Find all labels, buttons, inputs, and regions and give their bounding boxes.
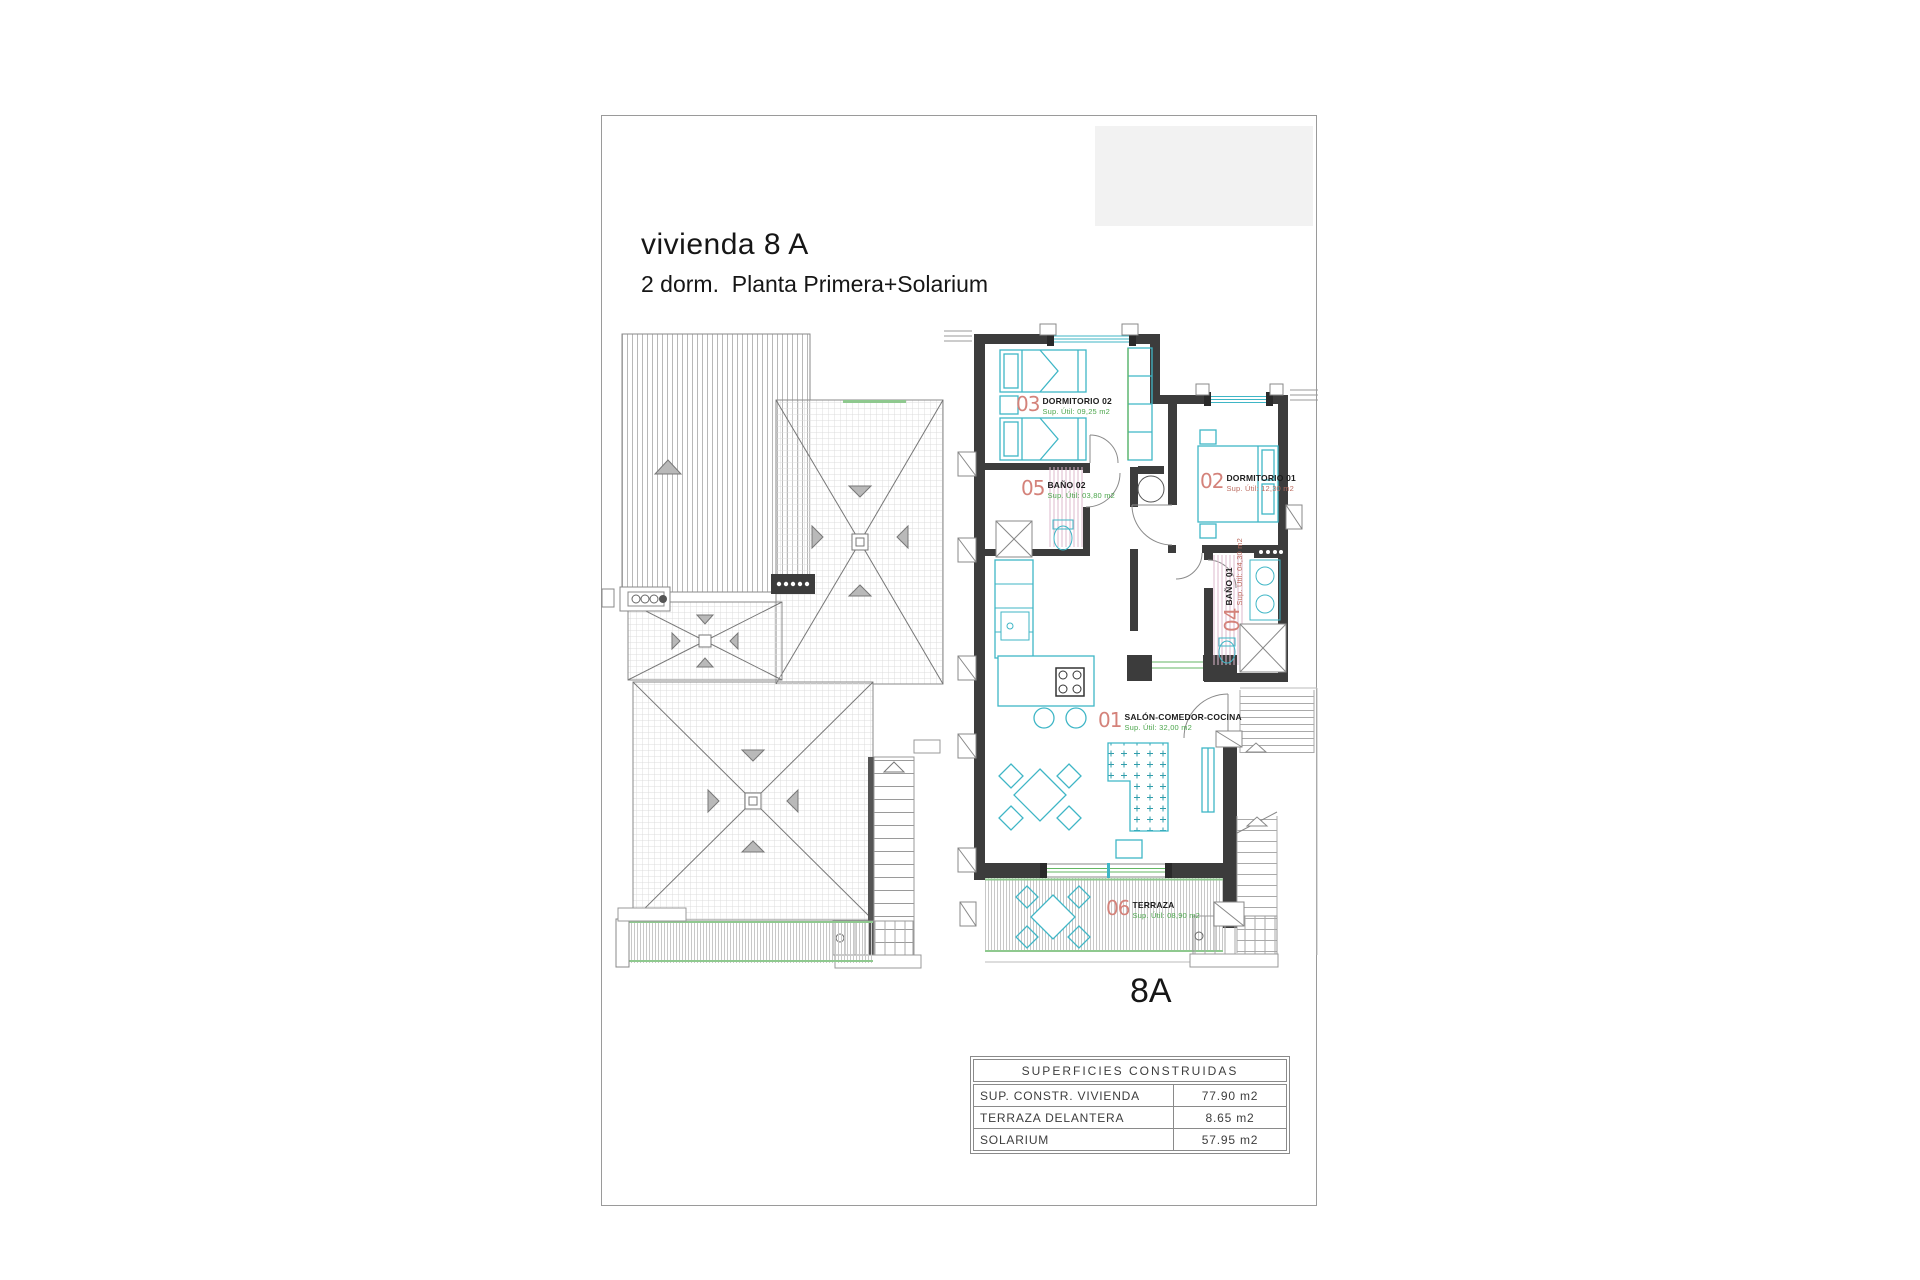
hip-roof-small xyxy=(628,602,782,680)
kitchen-fixtures xyxy=(995,560,1094,728)
solarium-roof-plan xyxy=(602,334,943,968)
room-number: 01 xyxy=(1098,712,1121,729)
room-number: 06 xyxy=(1106,900,1129,917)
room-name: BAÑO 01 xyxy=(1225,538,1234,606)
areas-table: SUPERFICIES CONSTRUIDAS SUP. CONSTR. VIV… xyxy=(970,1056,1290,1154)
table-row: TERRAZA DELANTERA 8.65 m2 xyxy=(974,1107,1286,1129)
roof-label-plate xyxy=(771,574,815,594)
room-number: 05 xyxy=(1021,480,1044,497)
plan-drawing xyxy=(0,0,1920,1280)
roof-legend-box xyxy=(602,587,670,611)
room-number: 03 xyxy=(1016,396,1039,413)
title-block: vivienda 8 A 2 dorm. Planta Primera+Sola… xyxy=(641,228,988,298)
room-label-bano-01: 04 BAÑO 01 Sup. Útil: 04,30 m2 xyxy=(1224,538,1243,632)
screen: vivienda 8 A 2 dorm. Planta Primera+Sola… xyxy=(0,0,1920,1280)
sheet-subtitle: 2 dorm. Planta Primera+Solarium xyxy=(641,271,988,298)
room-area: Sup. Útil: 03,80 m2 xyxy=(1047,492,1115,500)
sheet-title: vivienda 8 A xyxy=(641,228,988,262)
room-name: TERRAZA xyxy=(1132,901,1200,910)
areas-table-body: SUP. CONSTR. VIVIENDA 77.90 m2 TERRAZA D… xyxy=(973,1084,1287,1151)
apartment-floor-plan xyxy=(944,324,1318,967)
unit-label: 8A xyxy=(1130,972,1172,1011)
room-name: DORMITORIO 01 xyxy=(1226,474,1296,483)
hip-roof-upper xyxy=(776,400,943,684)
room-label-dormitorio-01: 02 DORMITORIO 01 Sup. Útil: 12,30 m2 xyxy=(1200,473,1296,492)
row-label: SUP. CONSTR. VIVIENDA xyxy=(974,1085,1173,1106)
row-value: 77.90 m2 xyxy=(1173,1085,1286,1106)
room-name: SALÓN-COMEDOR-COCINA xyxy=(1124,713,1241,722)
room-label-dormitorio-02: 03 DORMITORIO 02 Sup. Útil: 09,25 m2 xyxy=(1016,396,1112,415)
row-label: TERRAZA DELANTERA xyxy=(974,1107,1173,1128)
room-area: Sup. Útil: 09,25 m2 xyxy=(1042,408,1112,416)
room-area: Sup. Útil: 32,00 m2 xyxy=(1124,724,1241,732)
living-room-furniture xyxy=(999,743,1214,858)
room-name: DORMITORIO 02 xyxy=(1042,397,1112,406)
room-number: 04 xyxy=(1224,609,1241,632)
table-row: SUP. CONSTR. VIVIENDA 77.90 m2 xyxy=(974,1085,1286,1107)
room-label-salon-comedor-cocina: 01 SALÓN-COMEDOR-COCINA Sup. Útil: 32,00… xyxy=(1098,712,1242,731)
room-label-bano-02: 05 BAÑO 02 Sup. Útil: 03,80 m2 xyxy=(1021,480,1115,499)
areas-table-header: SUPERFICIES CONSTRUIDAS xyxy=(973,1059,1287,1082)
room-label-terraza: 06 TERRAZA Sup. Útil: 08,90 m2 xyxy=(1106,900,1200,919)
room-area: Sup. Útil: 08,90 m2 xyxy=(1132,912,1200,920)
table-row: SOLARIUM 57.95 m2 xyxy=(974,1129,1286,1150)
room-number: 02 xyxy=(1200,473,1223,490)
hip-roof-lower xyxy=(633,682,873,920)
room-name: BAÑO 02 xyxy=(1047,481,1115,490)
row-label: SOLARIUM xyxy=(974,1129,1173,1150)
terrace xyxy=(985,878,1223,962)
row-value: 57.95 m2 xyxy=(1173,1129,1286,1150)
row-value: 8.65 m2 xyxy=(1173,1107,1286,1128)
room-area: Sup. Útil: 12,30 m2 xyxy=(1226,485,1296,493)
room-area: Sup. Útil: 04,30 m2 xyxy=(1236,538,1244,606)
